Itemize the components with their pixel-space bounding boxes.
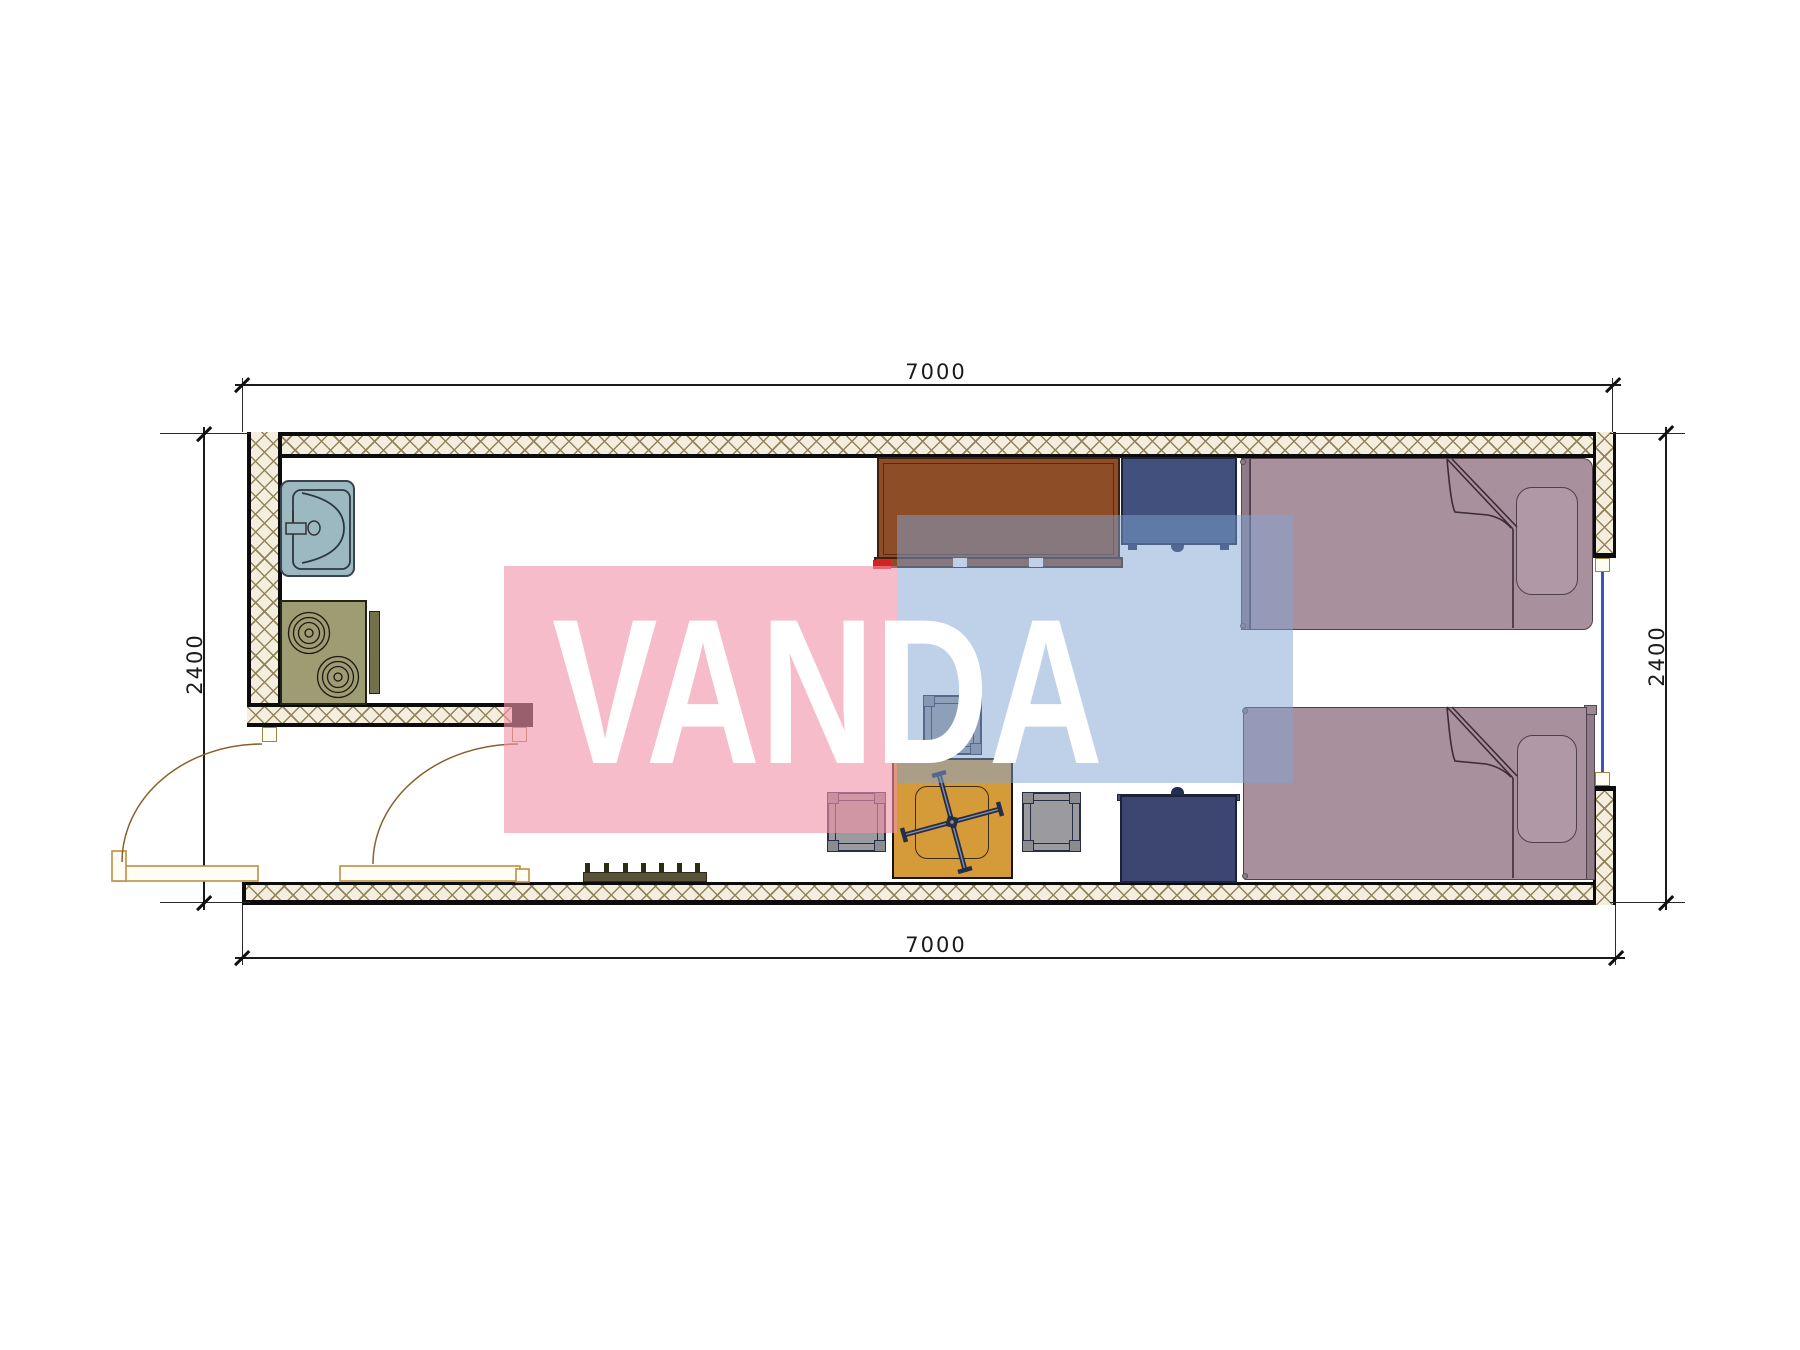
stool-right: [1022, 792, 1081, 852]
stool-post: [970, 695, 982, 707]
window-jamb-top: [1595, 558, 1610, 572]
door-swing-arc-2: [373, 744, 518, 864]
stool-post: [1022, 792, 1034, 804]
stool-post: [874, 792, 886, 804]
desk-red-accent: [873, 560, 891, 569]
grill-tooth: [695, 863, 700, 872]
wall-interior-return: [247, 703, 533, 727]
cabinet-foot: [1128, 544, 1137, 550]
dim-label-top: 7000: [876, 360, 996, 384]
stool-post: [1022, 840, 1034, 852]
stool-post: [827, 840, 839, 852]
extension-line: [1610, 433, 1685, 434]
stool-post: [827, 792, 839, 804]
door-leaf-1: [112, 851, 258, 881]
cabinet-foot: [1220, 544, 1229, 550]
dresser: [1120, 795, 1237, 883]
stool-post: [923, 695, 935, 707]
dim-label-left: 2400: [183, 604, 207, 724]
wall-bottom: [242, 882, 1616, 905]
stool-post: [923, 743, 935, 755]
bed1-pillow: [1516, 487, 1578, 595]
entry-grill: [583, 872, 707, 882]
door-leaf-2: [340, 866, 529, 882]
dimension-line-top: [235, 384, 1621, 386]
floor-plan-canvas: 7000 7000 2400 2400: [0, 0, 1800, 1350]
grill-tooth: [677, 863, 682, 872]
extension-line: [1610, 902, 1685, 903]
grill-tooth: [623, 863, 628, 872]
wall-left: [247, 432, 282, 703]
cabinet-knob: [1171, 545, 1184, 552]
bed2-headboard: [1586, 706, 1595, 880]
stool-post: [970, 743, 982, 755]
grill-tooth: [604, 863, 609, 872]
dresser-knob: [1171, 787, 1184, 795]
dim-label-bottom: 7000: [876, 933, 996, 957]
door-swing-arc-1: [122, 744, 262, 862]
door-hinge-jamb-1: [262, 727, 277, 742]
desk: [877, 457, 1120, 561]
grill-tooth: [659, 863, 664, 872]
stool-top: [923, 695, 982, 755]
window-jamb-bottom: [1595, 772, 1610, 786]
wardrobe-cabinet: [1121, 457, 1237, 545]
dim-label-right: 2400: [1645, 596, 1669, 716]
sink: [280, 480, 355, 577]
dimension-line-bottom: [235, 957, 1625, 959]
desk-ledge: [874, 557, 1123, 568]
desk-foot-gap: [953, 558, 967, 567]
stove-control-panel: [369, 611, 380, 694]
bed1-headboard: [1241, 458, 1250, 630]
bed2-pillow: [1517, 735, 1577, 843]
stool-left: [827, 792, 886, 852]
grill-tooth: [641, 863, 646, 872]
wall-right-lower: [1593, 786, 1616, 905]
stool-post: [1069, 792, 1081, 804]
watermark-text: VANDA: [552, 576, 1103, 807]
window-glazing-line: [1601, 572, 1604, 772]
office-table-inner-edge: [915, 786, 989, 859]
wall-right-upper: [1593, 432, 1616, 558]
stove: [280, 600, 367, 705]
grill-tooth: [585, 863, 590, 872]
desk-foot-gap: [1029, 558, 1043, 567]
stool-post: [1069, 840, 1081, 852]
stool-post: [874, 840, 886, 852]
wall-top: [247, 432, 1616, 458]
door-hinge-jamb-2: [512, 727, 527, 742]
